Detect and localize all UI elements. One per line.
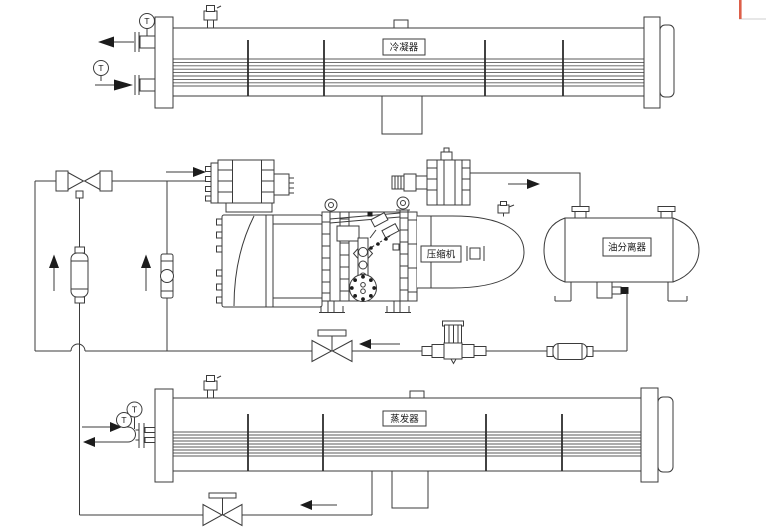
artifact-red-strip bbox=[739, 0, 742, 19]
condenser-support bbox=[382, 96, 422, 134]
suction-filter bbox=[71, 247, 88, 303]
lifting-eye-right bbox=[396, 197, 410, 210]
condenser-left-head bbox=[155, 17, 173, 108]
condenser-label: 冷凝器 bbox=[383, 39, 425, 55]
pipe-crossover-hump bbox=[71, 344, 85, 351]
flow-arrow-left-liquid bbox=[359, 339, 400, 349]
liquid-line-valve bbox=[312, 330, 352, 362]
condenser-right-cap bbox=[660, 25, 674, 97]
discharge-line bbox=[470, 173, 580, 207]
bottom-line-valve bbox=[203, 493, 242, 526]
condenser: T T 冷凝器 bbox=[94, 6, 675, 135]
flanged-valve bbox=[56, 171, 112, 198]
filter-drier bbox=[547, 344, 593, 360]
discharge-pipe bbox=[470, 173, 580, 207]
compressor-suction-valve bbox=[206, 160, 295, 212]
evaporator: T T 蒸发器 bbox=[82, 376, 673, 509]
refrigeration-schematic: T T 冷凝器 bbox=[0, 0, 766, 531]
lifting-eye-left bbox=[324, 199, 338, 212]
compressor-pump-cover bbox=[350, 275, 377, 302]
evaporator-shell bbox=[173, 398, 641, 471]
svg-text:冷凝器: 冷凝器 bbox=[390, 42, 419, 54]
sight-glass bbox=[161, 254, 174, 298]
compressor-dome bbox=[417, 202, 524, 289]
flow-arrow-right-discharge bbox=[508, 179, 540, 189]
compressor-motor-housing bbox=[217, 215, 323, 307]
compressor-feet bbox=[319, 301, 411, 313]
oil-separator: 油分离器 bbox=[544, 207, 699, 352]
compressor-discharge-valve bbox=[392, 148, 470, 205]
condenser-right-head bbox=[644, 17, 660, 108]
oil-separator-label: 油分离器 bbox=[603, 238, 651, 256]
flow-arrow-up-left bbox=[49, 255, 59, 292]
condenser-safety-valve bbox=[204, 6, 221, 29]
compressor-nameplate bbox=[337, 226, 359, 241]
flow-arrow-right-suction bbox=[166, 167, 206, 177]
expansion-valve bbox=[422, 321, 486, 364]
oil-separator-nozzle-right bbox=[658, 207, 675, 219]
condenser-inlet-temp-sensor: T bbox=[94, 61, 109, 82]
flow-arrow-up-right bbox=[141, 255, 151, 292]
condenser-outlet-temp-sensor: T bbox=[140, 14, 155, 37]
evaporator-temp-sensor-lower: T bbox=[117, 413, 132, 428]
scan-artifact bbox=[739, 0, 766, 19]
temp-sensor-label: T bbox=[144, 17, 150, 26]
evaporator-safety-valve bbox=[204, 376, 221, 399]
svg-text:油分离器: 油分离器 bbox=[608, 242, 647, 254]
oil-separator-outlet bbox=[597, 282, 628, 351]
condenser-water-outlet bbox=[98, 32, 155, 52]
condenser-top-nozzle bbox=[394, 20, 408, 28]
evaporator-outlet-line bbox=[80, 471, 373, 526]
svg-text:压缩机: 压缩机 bbox=[427, 249, 456, 261]
compressor-label: 压缩机 bbox=[421, 246, 461, 262]
temp-sensor-label: T bbox=[98, 64, 104, 73]
evaporator-right-cap bbox=[658, 397, 673, 472]
evaporator-label: 蒸发器 bbox=[383, 411, 426, 426]
liquid-line bbox=[35, 321, 627, 364]
temp-sensor-label: T bbox=[131, 406, 137, 415]
condenser-water-inlet bbox=[95, 75, 155, 95]
evaporator-right-head bbox=[641, 388, 658, 482]
temp-sensor-label: T bbox=[121, 416, 127, 425]
evaporator-support bbox=[392, 471, 428, 508]
oil-separator-nozzle-left bbox=[572, 207, 589, 219]
evaporator-water-connections bbox=[82, 422, 155, 448]
svg-text:蒸发器: 蒸发器 bbox=[390, 413, 419, 425]
evaporator-top-nozzle bbox=[410, 391, 424, 398]
schematic-canvas: T T 冷凝器 bbox=[0, 0, 766, 531]
evaporator-left-head bbox=[155, 389, 173, 482]
flow-arrow-left-bottom bbox=[300, 500, 337, 510]
dome-top-valve bbox=[498, 202, 514, 217]
